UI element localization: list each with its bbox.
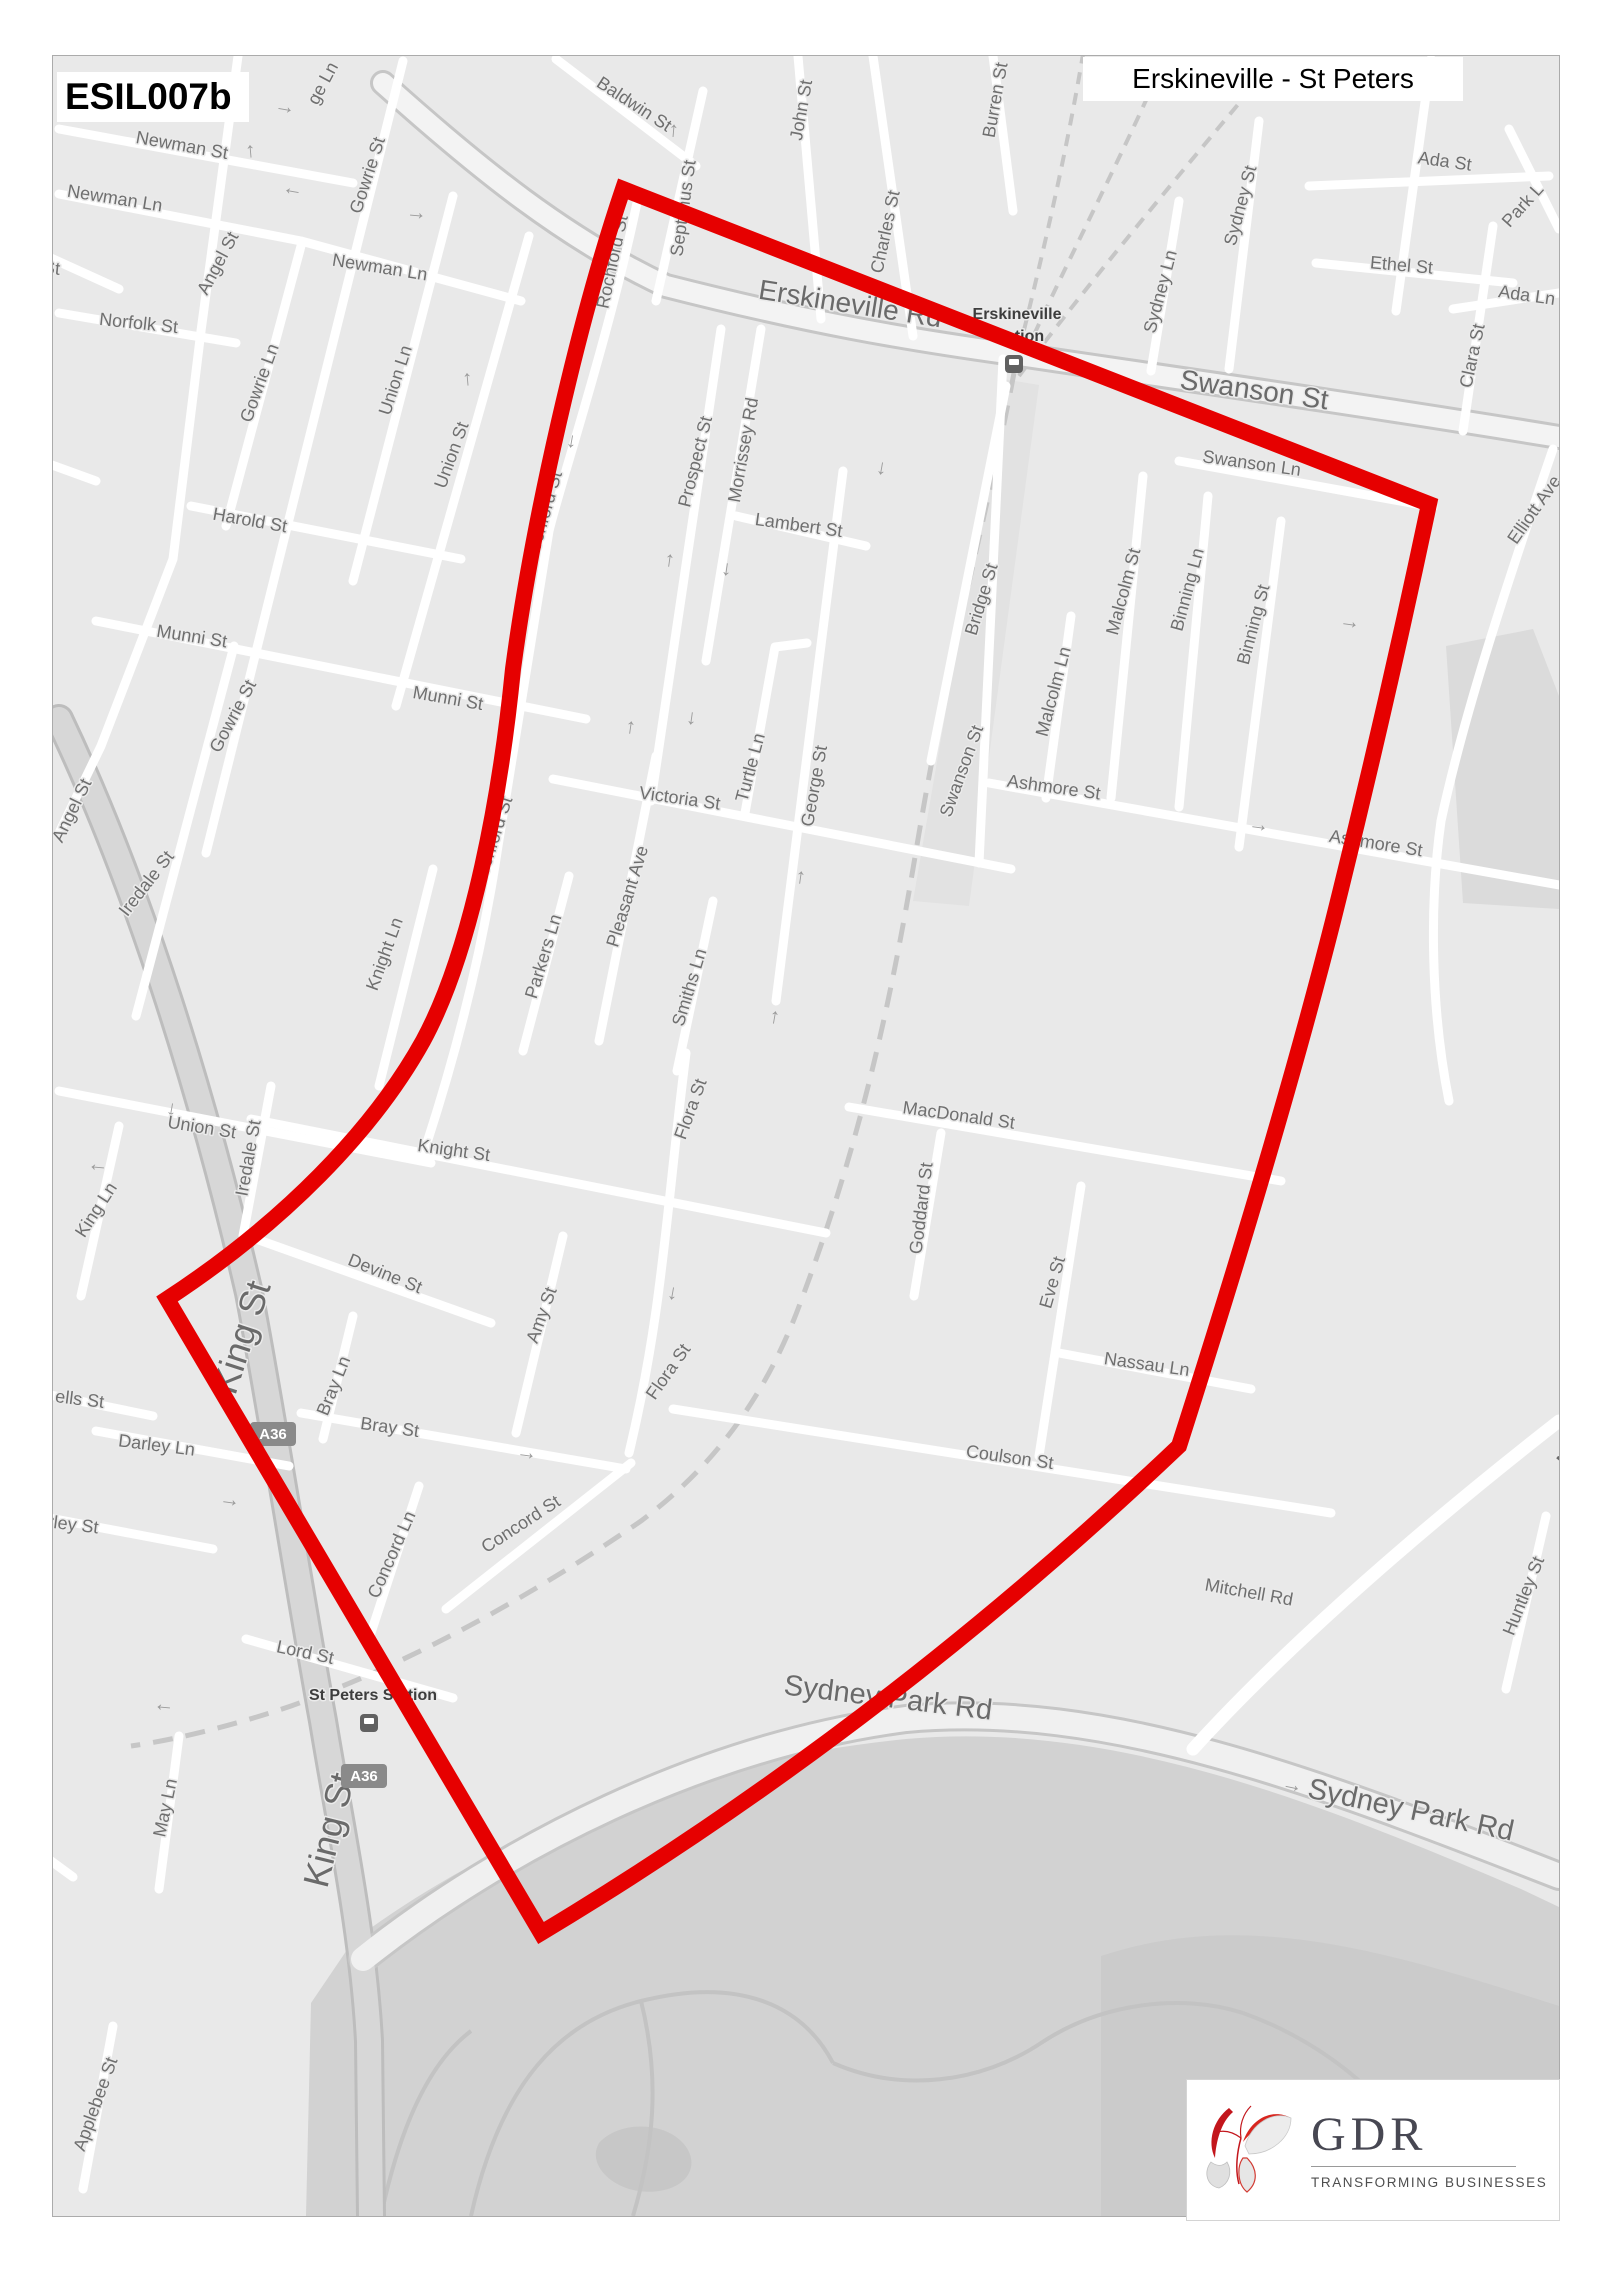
one-way-arrow-icon: →	[871, 457, 897, 482]
map-label: Newman Ln	[66, 181, 164, 216]
map-label: Darley St	[53, 1509, 100, 1538]
map-code-text: ESIL007b	[65, 76, 232, 118]
street	[1179, 496, 1208, 807]
map-label: Smiths Ln	[668, 946, 711, 1028]
map-label: Ethel St	[1369, 252, 1434, 277]
station-icon-window	[1009, 359, 1019, 365]
one-way-arrow-icon: →	[561, 430, 587, 455]
map-label: Erskineville	[973, 306, 1062, 323]
street	[556, 59, 696, 166]
map-label: May Ln	[149, 1777, 181, 1839]
logo-divider	[1311, 2166, 1516, 2167]
map-label: St Peters Station	[309, 1687, 437, 1704]
route-badge-label: A36	[350, 1768, 378, 1785]
map-label: Nassau Ln	[1103, 1348, 1191, 1380]
map-label: Baldwin St	[593, 72, 675, 135]
map-code-label: ESIL007b	[57, 72, 249, 122]
one-way-arrow-icon: →	[280, 181, 305, 207]
map-label: ells St	[54, 1386, 105, 1412]
street	[256, 1239, 491, 1323]
street	[53, 1839, 73, 1877]
map-label: Sydney St	[1220, 163, 1261, 247]
one-way-arrow-icon: →	[717, 558, 743, 582]
map-label: Harold St	[211, 504, 288, 537]
map-label: Bray St	[359, 1413, 420, 1441]
map-label: Elliott Ave	[1503, 472, 1559, 548]
map-label: Concord Ln	[363, 1508, 419, 1601]
map-canvas: →→→→→→→→→→→→→→→→→→→→→→→Newman StNewman L…	[53, 56, 1559, 2216]
logo-tagline: TRANSFORMING BUSINESSES	[1311, 2175, 1547, 2190]
map-label: Prospect St	[674, 414, 716, 509]
map-label: Amy St	[522, 1284, 561, 1345]
one-way-arrow-icon: →	[86, 1158, 109, 1183]
map-label: Gowrie St	[346, 134, 389, 215]
map-label: St	[53, 257, 61, 279]
butterfly-icon	[1199, 2104, 1299, 2196]
one-way-arrow-icon: →	[235, 140, 260, 163]
street	[53, 453, 96, 481]
one-way-arrow-icon: →	[758, 1005, 784, 1030]
railway-line	[131, 373, 1014, 1746]
map-label: Lambert St	[754, 509, 844, 541]
one-way-arrow-icon: →	[682, 707, 708, 731]
map-label: Malcolm Ln	[1032, 644, 1075, 738]
one-way-arrow-icon: →	[152, 1698, 175, 1723]
map-label: Turtle Ln	[731, 731, 769, 804]
street	[301, 1413, 626, 1469]
street	[53, 249, 119, 289]
map-title: Erskineville - St Peters	[1083, 57, 1463, 101]
street	[776, 471, 843, 1001]
one-way-arrow-icon: →	[1338, 609, 1362, 635]
one-way-arrow-icon: →	[218, 1487, 242, 1513]
map-label: Knight Ln	[362, 915, 407, 993]
map-label: Parkers Ln	[521, 912, 566, 1001]
one-way-arrow-icon: →	[405, 200, 428, 225]
railway-line	[1014, 56, 1086, 371]
map-label: Sydney Ln	[1140, 248, 1181, 335]
map-label: Newman St	[134, 127, 229, 163]
rail-corridor	[913, 379, 1039, 906]
map-label: Malcolm St	[1102, 546, 1144, 637]
one-way-arrow-icon: →	[273, 93, 298, 119]
map-frame: →→→→→→→→→→→→→→→→→→→→→→→Newman StNewman L…	[52, 55, 1560, 2217]
street	[396, 236, 529, 706]
map-label: Morrissey Rd	[724, 396, 762, 504]
station-icon-window	[364, 1718, 374, 1724]
map-label: Clara St	[1456, 322, 1489, 390]
route-badge-label: A36	[259, 1426, 287, 1443]
one-way-arrow-icon: →	[515, 1440, 539, 1466]
street	[251, 1119, 826, 1233]
map-label: Park L	[1498, 179, 1548, 231]
one-way-arrow-icon: →	[452, 368, 477, 391]
logo-text-block: GDR TRANSFORMING BUSINESSES	[1311, 2111, 1547, 2190]
street	[446, 1463, 631, 1609]
map-label: Norfolk St	[98, 309, 179, 337]
map-label: John St	[786, 78, 816, 142]
street	[1309, 176, 1549, 186]
one-way-arrow-icon: →	[615, 715, 641, 739]
map-label: Victoria St	[638, 782, 722, 813]
map-label: Ada St	[1417, 147, 1473, 174]
street	[1111, 476, 1143, 798]
gdr-logo: GDR TRANSFORMING BUSINESSES	[1186, 2079, 1560, 2221]
one-way-arrow-icon: →	[662, 1282, 688, 1307]
street	[1039, 1186, 1081, 1456]
map-label: Darley Ln	[117, 1430, 196, 1459]
logo-name: GDR	[1311, 2111, 1547, 2159]
one-way-arrow-icon: →	[1247, 812, 1271, 838]
map-title-text: Erskineville - St Peters	[1132, 63, 1414, 95]
map-label: ge Ln	[303, 59, 342, 108]
map-label: Bray Ln	[313, 1353, 355, 1418]
one-way-arrow-icon: →	[785, 865, 811, 889]
map-label: Munni St	[155, 621, 228, 652]
one-way-arrow-icon: →	[654, 548, 680, 572]
map-label: Pleasant Ave	[602, 843, 652, 949]
report-page: →→→→→→→→→→→→→→→→→→→→→→→Newman StNewman L…	[0, 0, 1614, 2283]
street	[136, 646, 234, 1016]
street	[1239, 521, 1281, 847]
map-label: Mitchell Rd	[1203, 1575, 1294, 1610]
